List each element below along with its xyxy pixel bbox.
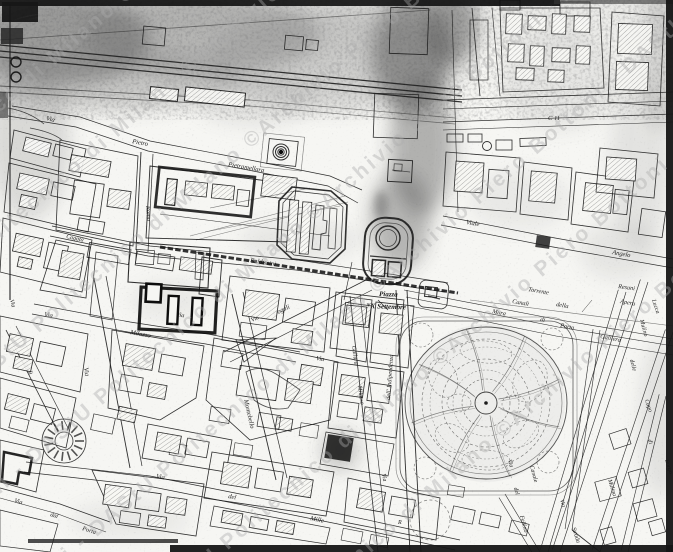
svg-text:Via: Via [316,355,325,363]
